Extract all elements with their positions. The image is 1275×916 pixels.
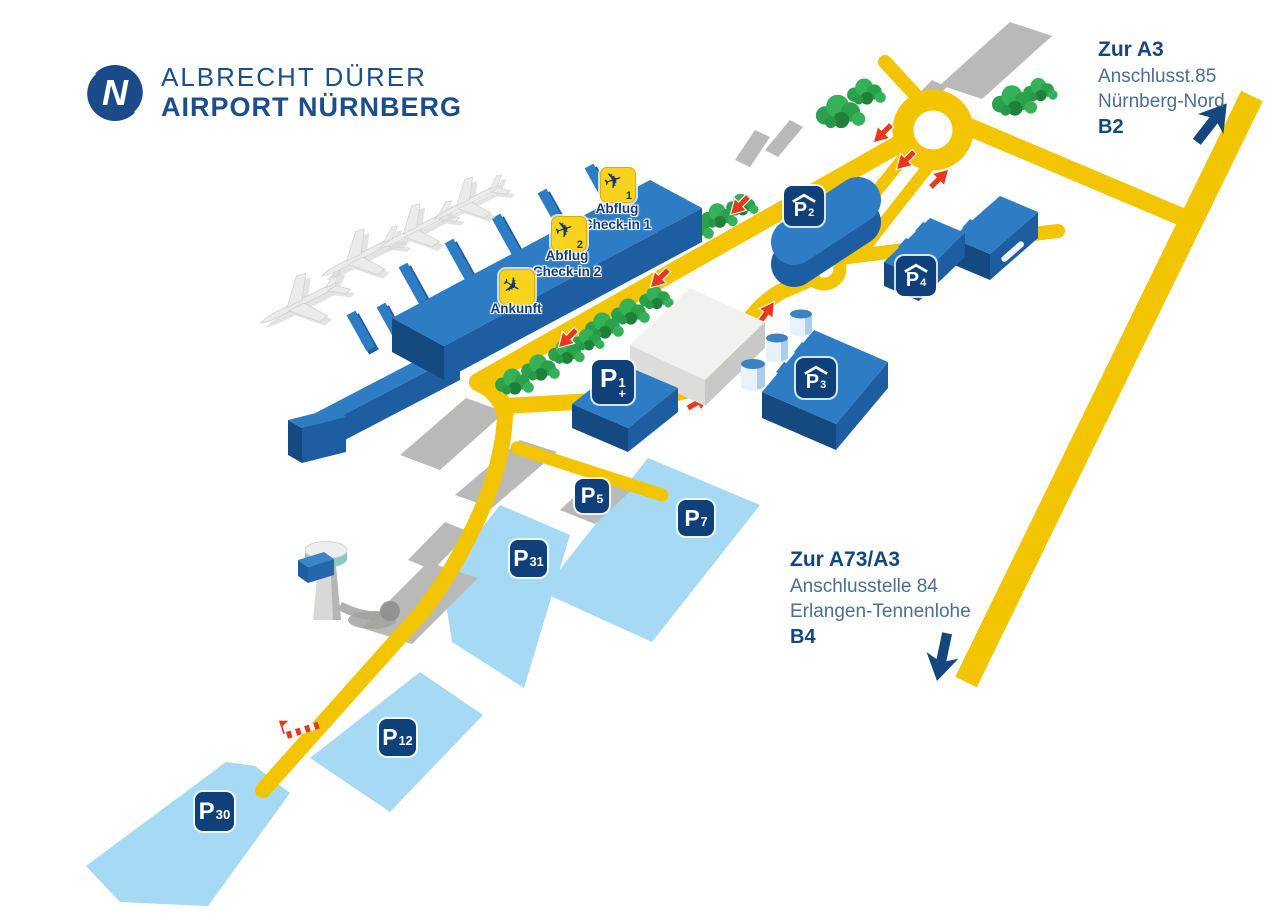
a3-destination: Nürnberg-Nord <box>1098 89 1225 114</box>
brand-line2: AIRPORT NÜRNBERG <box>161 92 462 123</box>
parking-sign-p3: P 3 <box>796 358 836 398</box>
parking-sign-p12: P 12 <box>379 719 416 756</box>
brand-header: N ALBRECHT DÜRER AIRPORT NÜRNBERG <box>84 62 462 124</box>
control-tower <box>298 542 400 630</box>
open-parking-lots <box>86 458 760 906</box>
a3-title: Zur A3 <box>1098 36 1225 64</box>
direction-a73: Zur A73/A3 Anschlusstelle 84 Erlangen-Te… <box>790 546 971 650</box>
map-graphics <box>0 0 1275 916</box>
a73-destination: Erlangen-Tennenlohe <box>790 599 971 624</box>
a73-road: B4 <box>790 624 971 650</box>
parking-sign-p1: P 1 + <box>592 360 634 404</box>
arrival-sign: ✈ <box>499 269 535 305</box>
a3-road: B2 <box>1098 114 1225 140</box>
brand-text: ALBRECHT DÜRER AIRPORT NÜRNBERG <box>161 63 462 124</box>
parking-sign-p30: P 30 <box>195 792 234 831</box>
parking-sign-p5: P 5 <box>575 479 609 513</box>
direction-a3: Zur A3 Anschlusst.85 Nürnberg-Nord B2 <box>1098 36 1225 140</box>
a73-junction: Anschlusstelle 84 <box>790 574 971 599</box>
a3-junction: Anschlusst.85 <box>1098 64 1225 89</box>
p1-number-suffix: 1 + <box>618 377 626 399</box>
parking-sign-p4: P 4 <box>896 256 936 296</box>
airport-logo: N <box>84 62 146 124</box>
departure-plane-icon: ✈ <box>600 166 626 196</box>
arrival-label: Ankunft <box>464 301 568 317</box>
parking-sign-p7: P 7 <box>678 500 714 536</box>
logo-letter: N <box>102 72 129 113</box>
parking-sign-p2: P 2 <box>784 186 824 226</box>
departure-plane-icon: ✈ <box>551 215 577 245</box>
airport-map: N ALBRECHT DÜRER AIRPORT NÜRNBERG Zur A3… <box>0 0 1275 916</box>
a73-title: Zur A73/A3 <box>790 546 971 574</box>
parking-sign-p31: P 31 <box>510 540 547 577</box>
brand-line1: ALBRECHT DÜRER <box>161 63 462 93</box>
checkin1-sign: ✈ 1 <box>600 167 636 203</box>
checkin2-sign: ✈ 2 <box>551 216 587 252</box>
arrival-plane-icon: ✈ <box>497 270 526 302</box>
